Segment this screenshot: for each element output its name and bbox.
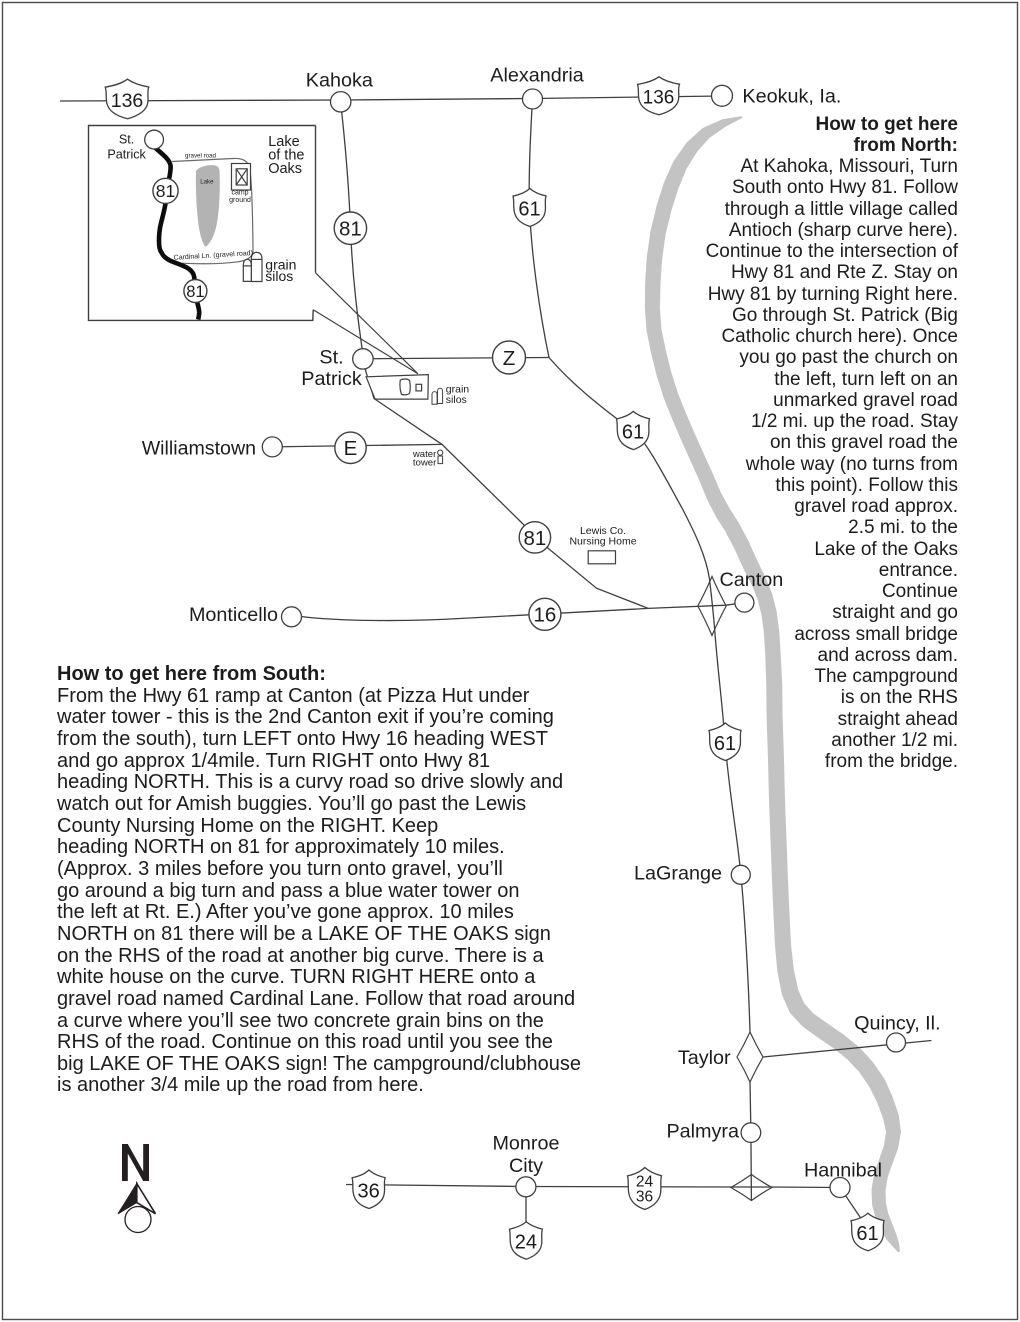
svg-text:Patrick: Patrick [107, 148, 146, 162]
svg-text:ground: ground [229, 197, 251, 204]
svg-text:Cardinal Ln. (gravel road): Cardinal Ln. (gravel road) [173, 250, 253, 262]
svg-text:61: 61 [856, 1223, 878, 1245]
svg-text:Patrick: Patrick [301, 368, 362, 390]
svg-text:Oaks: Oaks [268, 161, 302, 177]
svg-text:81: 81 [523, 527, 546, 550]
svg-text:tower: tower [413, 457, 437, 468]
svg-text:silos: silos [446, 394, 467, 406]
svg-text:136: 136 [111, 90, 144, 112]
svg-text:Kahoka: Kahoka [306, 70, 373, 92]
svg-text:81: 81 [339, 218, 362, 241]
svg-text:silos: silos [265, 268, 293, 284]
svg-text:Quincy, Il.: Quincy, Il. [854, 1013, 940, 1035]
svg-text:24: 24 [515, 1232, 537, 1254]
svg-text:16: 16 [533, 604, 556, 627]
svg-text:Monroe: Monroe [492, 1133, 559, 1155]
svg-text:camp: camp [231, 190, 248, 197]
svg-text:St.: St. [119, 133, 134, 147]
svg-text:LaGrange: LaGrange [634, 863, 722, 885]
svg-text:Nursing Home: Nursing Home [569, 535, 636, 547]
svg-text:136: 136 [643, 88, 675, 109]
svg-text:Williamstown: Williamstown [142, 438, 256, 460]
svg-text:E: E [344, 437, 358, 460]
svg-text:61: 61 [622, 422, 644, 444]
svg-text:Taylor: Taylor [678, 1047, 731, 1069]
svg-text:61: 61 [518, 199, 540, 221]
svg-text:36: 36 [357, 1181, 379, 1203]
svg-text:Monticello: Monticello [189, 604, 278, 626]
svg-text:81: 81 [186, 283, 204, 301]
svg-text:City: City [509, 1155, 543, 1177]
svg-text:Z: Z [503, 347, 516, 370]
svg-text:Palmyra: Palmyra [666, 1121, 739, 1143]
svg-text:Alexandria: Alexandria [490, 65, 583, 87]
svg-text:Hannibal: Hannibal [804, 1160, 882, 1182]
svg-text:Keokuk, Ia.: Keokuk, Ia. [742, 86, 841, 108]
svg-text:Lake: Lake [200, 178, 214, 185]
svg-text:36: 36 [636, 1189, 653, 1206]
svg-text:81: 81 [156, 181, 175, 201]
svg-text:St.: St. [319, 347, 343, 369]
svg-text:gravel road: gravel road [185, 152, 217, 159]
